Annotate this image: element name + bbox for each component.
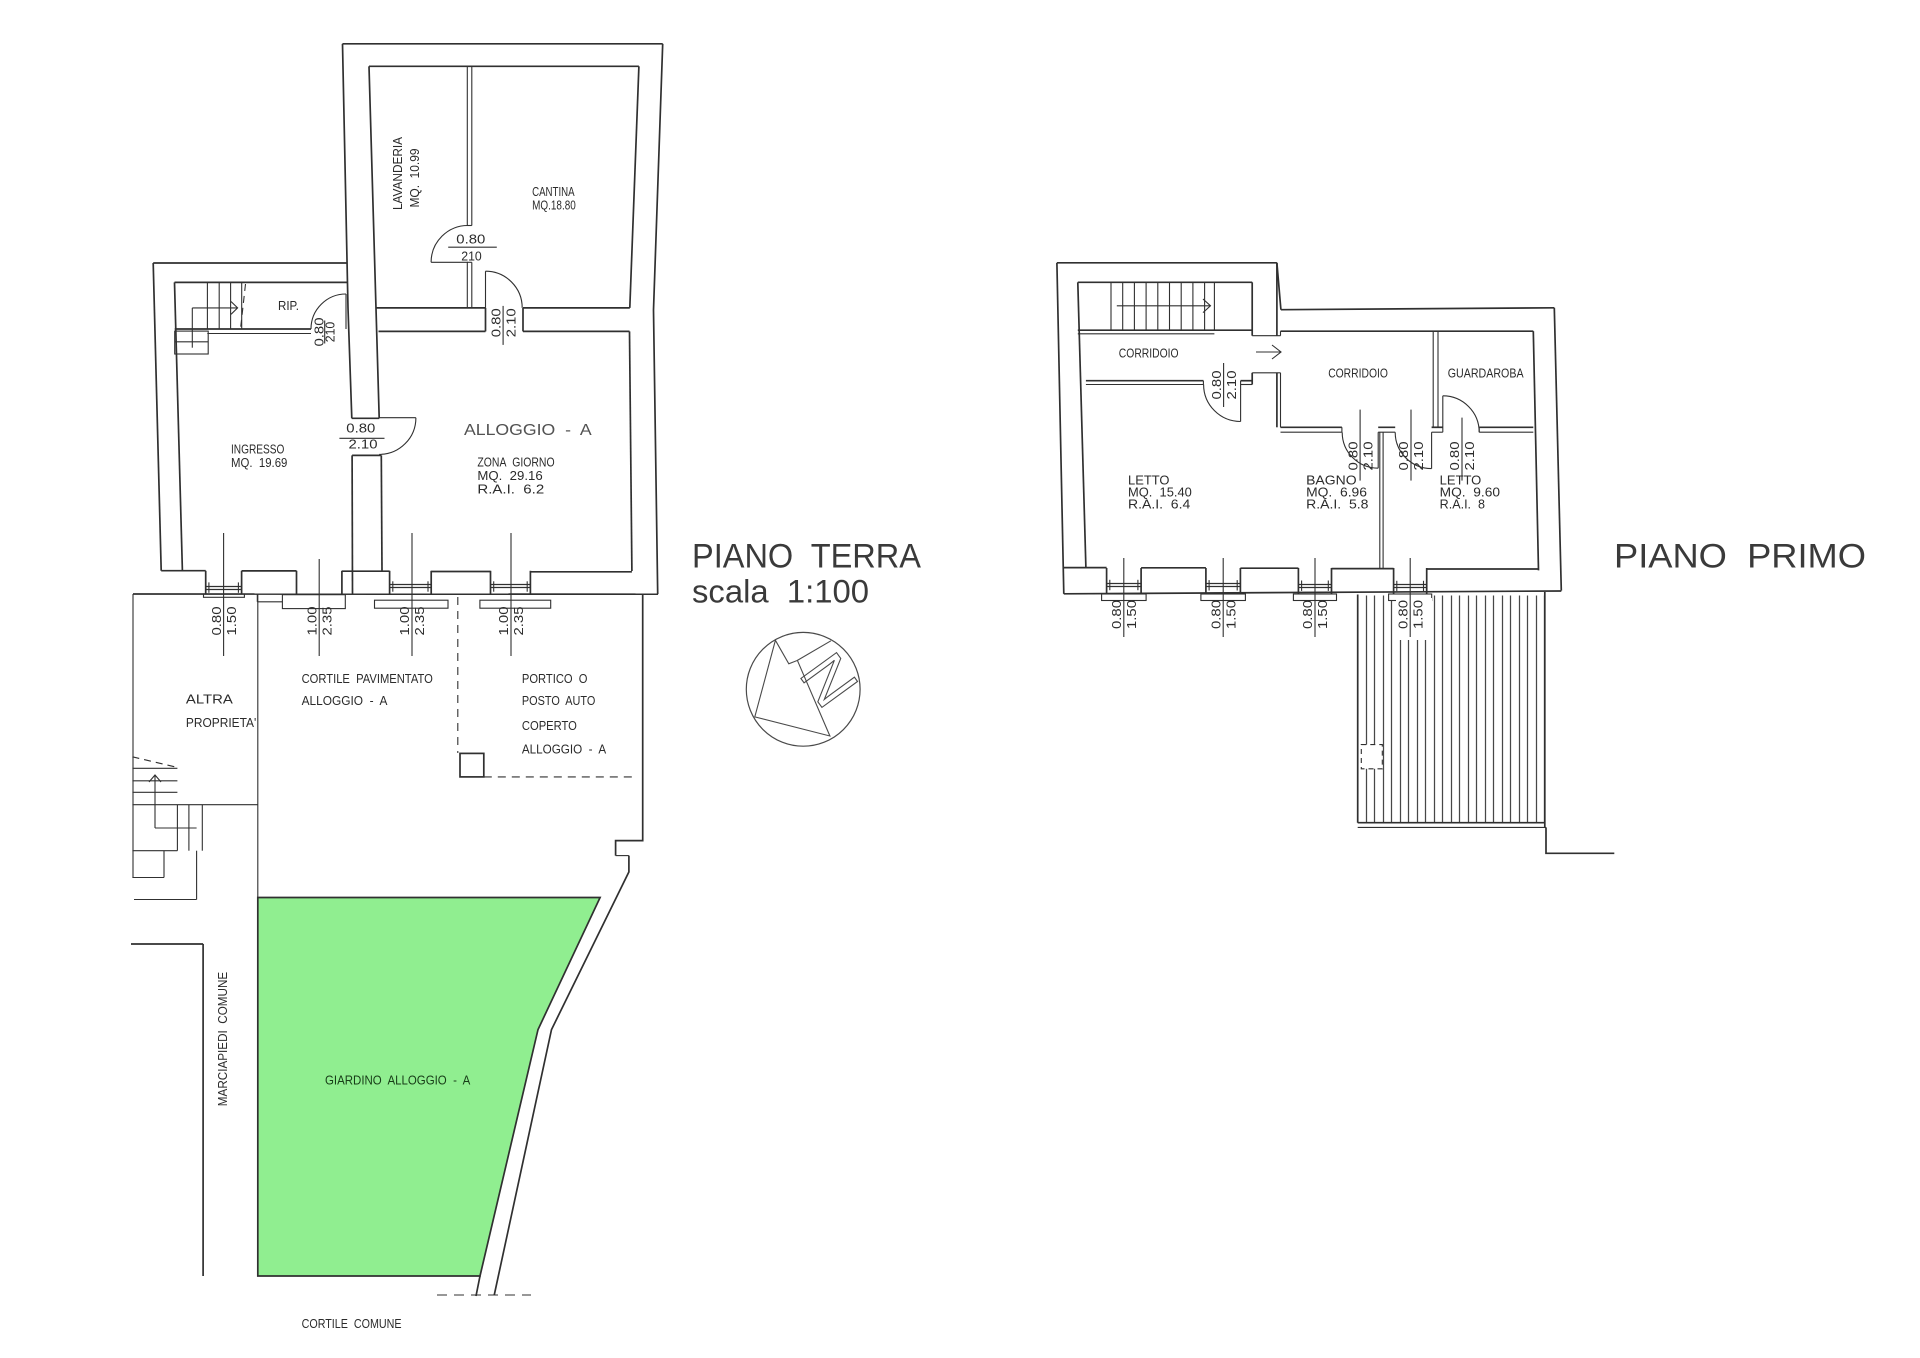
svg-text:MQ.18.80: MQ.18.80 [532, 199, 576, 213]
svg-text:PORTICO O: PORTICO O [522, 672, 588, 686]
svg-text:COPERTO: COPERTO [522, 719, 577, 733]
svg-text:2.10: 2.10 [349, 436, 378, 451]
svg-text:0.80: 0.80 [1208, 600, 1223, 629]
svg-text:MQ. 29.16: MQ. 29.16 [477, 469, 542, 483]
svg-text:INGRESSO: INGRESSO [231, 442, 285, 456]
svg-text:ALTRA: ALTRA [186, 692, 234, 706]
svg-text:CORTILE PAVIMENTATO: CORTILE PAVIMENTATO [302, 672, 433, 686]
svg-text:2.10: 2.10 [1462, 442, 1477, 471]
svg-text:R.A.I. 8: R.A.I. 8 [1440, 497, 1485, 511]
svg-text:1.50: 1.50 [1410, 600, 1425, 629]
svg-text:CANTINA: CANTINA [532, 185, 575, 199]
svg-text:CORRIDOIO: CORRIDOIO [1328, 367, 1388, 381]
svg-text:1.50: 1.50 [1124, 600, 1139, 629]
svg-text:MQ. 19.69: MQ. 19.69 [231, 456, 287, 470]
svg-text:R.A.I. 6.4: R.A.I. 6.4 [1128, 497, 1190, 511]
svg-text:0.80: 0.80 [1109, 600, 1124, 629]
svg-text:1.00: 1.00 [397, 607, 412, 636]
svg-text:1.00: 1.00 [304, 607, 319, 636]
svg-text:CORTILE COMUNE: CORTILE COMUNE [302, 1317, 402, 1331]
svg-text:ALLOGGIO - A: ALLOGGIO - A [522, 742, 607, 756]
svg-text:2.35: 2.35 [511, 607, 526, 636]
svg-text:0.80: 0.80 [1209, 371, 1224, 400]
svg-text:0.80: 0.80 [1300, 600, 1315, 629]
svg-text:2.10: 2.10 [1360, 442, 1375, 471]
svg-text:MARCIAPIEDI COMUNE: MARCIAPIEDI COMUNE [216, 972, 230, 1106]
svg-text:2.10: 2.10 [503, 308, 518, 337]
svg-text:1.00: 1.00 [496, 607, 511, 636]
svg-text:GIARDINO ALLOGGIO - A: GIARDINO ALLOGGIO - A [325, 1073, 471, 1087]
svg-text:CORRIDOIO: CORRIDOIO [1119, 347, 1179, 361]
svg-text:1.50: 1.50 [224, 607, 239, 636]
svg-text:2.35: 2.35 [412, 607, 427, 636]
svg-text:RIP.: RIP. [278, 299, 299, 313]
svg-text:ALLOGGIO - A: ALLOGGIO - A [302, 694, 389, 708]
svg-text:210: 210 [461, 248, 482, 263]
svg-text:MQ. 10.99: MQ. 10.99 [408, 148, 422, 207]
svg-text:2.10: 2.10 [1224, 371, 1239, 400]
svg-text:1.50: 1.50 [1223, 600, 1238, 629]
svg-text:0.80: 0.80 [488, 308, 503, 337]
svg-text:PIANO PRIMO: PIANO PRIMO [1614, 538, 1866, 576]
svg-text:LAVANDERIA: LAVANDERIA [391, 136, 405, 210]
svg-text:ALLOGGIO - A: ALLOGGIO - A [464, 422, 592, 439]
svg-text:0.80: 0.80 [1447, 442, 1462, 471]
svg-text:N: N [787, 640, 872, 720]
svg-text:PROPRIETA': PROPRIETA' [186, 716, 256, 730]
svg-text:0.80: 0.80 [1396, 442, 1411, 471]
svg-text:GUARDAROBA: GUARDAROBA [1448, 367, 1524, 381]
svg-text:POSTO AUTO: POSTO AUTO [522, 694, 596, 708]
svg-text:0.80: 0.80 [456, 232, 485, 247]
svg-text:2.35: 2.35 [319, 607, 334, 636]
svg-text:PIANO TERRA: PIANO TERRA [692, 538, 921, 576]
svg-text:0.80: 0.80 [1395, 600, 1410, 629]
svg-text:R.A.I. 5.8: R.A.I. 5.8 [1306, 497, 1368, 511]
svg-text:0.80: 0.80 [1345, 442, 1360, 471]
svg-text:2.10: 2.10 [1411, 442, 1426, 471]
svg-text:1.50: 1.50 [1315, 600, 1330, 629]
svg-text:210: 210 [323, 322, 338, 343]
svg-text:scala 1:100: scala 1:100 [692, 574, 869, 610]
svg-text:0.80: 0.80 [209, 607, 224, 636]
svg-text:ZONA GIORNO: ZONA GIORNO [477, 456, 554, 470]
svg-text:0.80: 0.80 [346, 421, 375, 436]
svg-text:R.A.I. 6.2: R.A.I. 6.2 [477, 482, 544, 496]
